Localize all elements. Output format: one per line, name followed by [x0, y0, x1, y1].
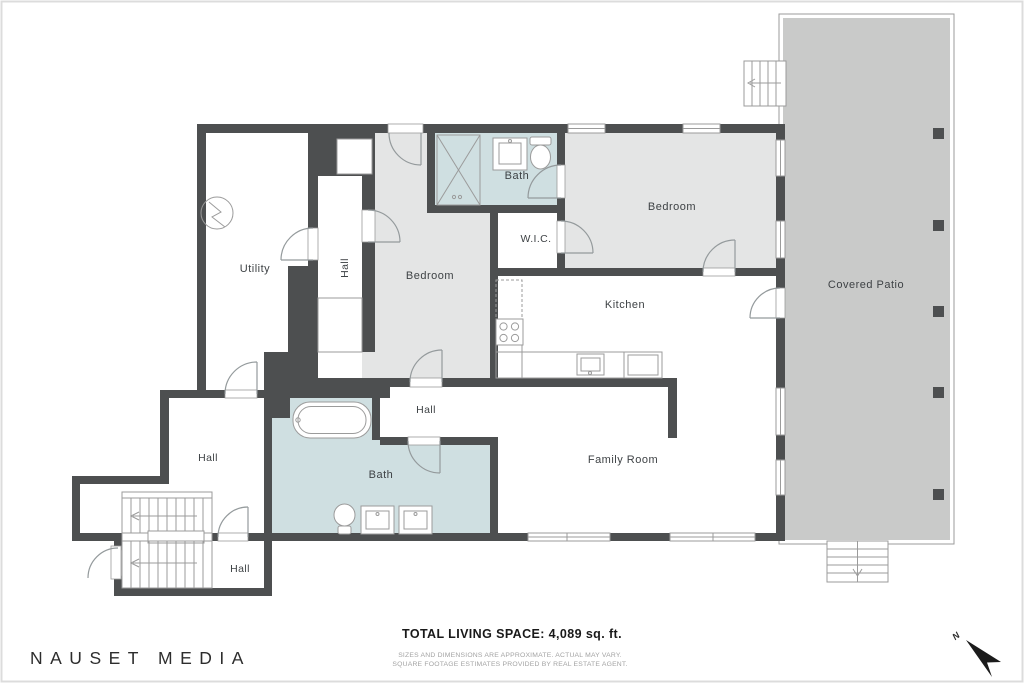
- north-label: N: [950, 630, 962, 642]
- total-living-space: TOTAL LIVING SPACE: 4,089 sq. ft.: [402, 627, 622, 641]
- bathtub: [293, 402, 371, 438]
- door: [281, 228, 318, 260]
- window: [776, 388, 785, 435]
- closet: [337, 139, 372, 174]
- window: [568, 124, 605, 133]
- room-label-wic: W.I.C.: [521, 233, 552, 245]
- window: [776, 140, 785, 176]
- footer: NAUSET MEDIA TOTAL LIVING SPACE: 4,089 s…: [30, 627, 628, 668]
- kitchen-appliance: [624, 352, 662, 378]
- room-label-covered-patio: Covered Patio: [828, 279, 904, 291]
- north-arrow-icon: [966, 640, 1001, 677]
- stove: [496, 319, 523, 345]
- room-label-bedroom-middle: Bedroom: [406, 270, 454, 282]
- floor-plan-page: Utility Hall Bedroom Bath W.I.C. Bedroom…: [0, 0, 1024, 683]
- window: [776, 221, 785, 258]
- room-label-bedroom-right: Bedroom: [648, 201, 696, 213]
- door: [225, 362, 257, 398]
- room-label-hall-upper: Hall: [339, 258, 351, 278]
- floor-plan: Utility Hall Bedroom Bath W.I.C. Bedroom…: [0, 0, 1024, 683]
- room-label-bath-bottom: Bath: [369, 469, 394, 481]
- room-label-hall-middle: Hall: [416, 404, 436, 416]
- room-label-hall-lower: Hall: [198, 452, 218, 464]
- staircase-main: [122, 492, 212, 588]
- studio-logo: NAUSET MEDIA: [30, 648, 251, 668]
- compass: N: [950, 630, 1001, 677]
- window: [670, 533, 755, 541]
- window: [528, 533, 610, 541]
- door: [88, 546, 122, 579]
- window: [776, 460, 785, 495]
- door: [750, 288, 785, 318]
- door: [218, 507, 248, 541]
- room-label-bath-top: Bath: [505, 170, 530, 182]
- sink: [493, 138, 527, 170]
- sink: [399, 506, 432, 534]
- disclaimer-line-2: SQUARE FOOTAGE ESTIMATES PROVIDED BY REA…: [392, 661, 627, 668]
- exterior-stairs-bottom: [827, 541, 888, 582]
- room-label-hall-bottom: Hall: [230, 563, 250, 575]
- sink: [361, 506, 394, 534]
- exterior-stairs-top: [744, 61, 786, 106]
- window: [683, 124, 720, 133]
- sink: [577, 354, 604, 375]
- room-label-family-room: Family Room: [588, 454, 658, 466]
- room-label-kitchen: Kitchen: [605, 299, 645, 311]
- disclaimer-line-1: SIZES AND DIMENSIONS ARE APPROXIMATE. AC…: [398, 652, 622, 659]
- toilet: [530, 137, 551, 169]
- bath-notch-floor: [272, 418, 290, 442]
- closet: [318, 298, 362, 352]
- room-label-utility: Utility: [240, 263, 270, 275]
